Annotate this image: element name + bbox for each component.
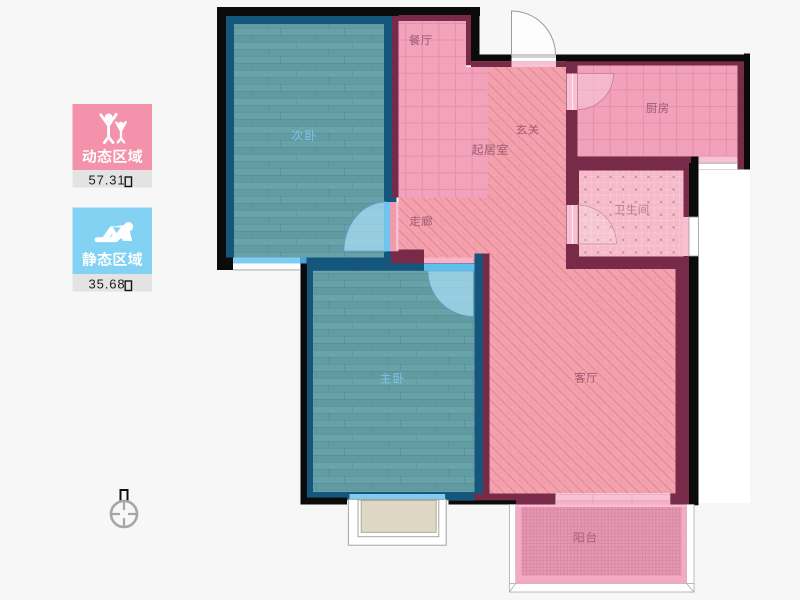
svg-text:57.31: 57.31 [89, 173, 126, 188]
svg-text:35.68: 35.68 [89, 277, 126, 292]
